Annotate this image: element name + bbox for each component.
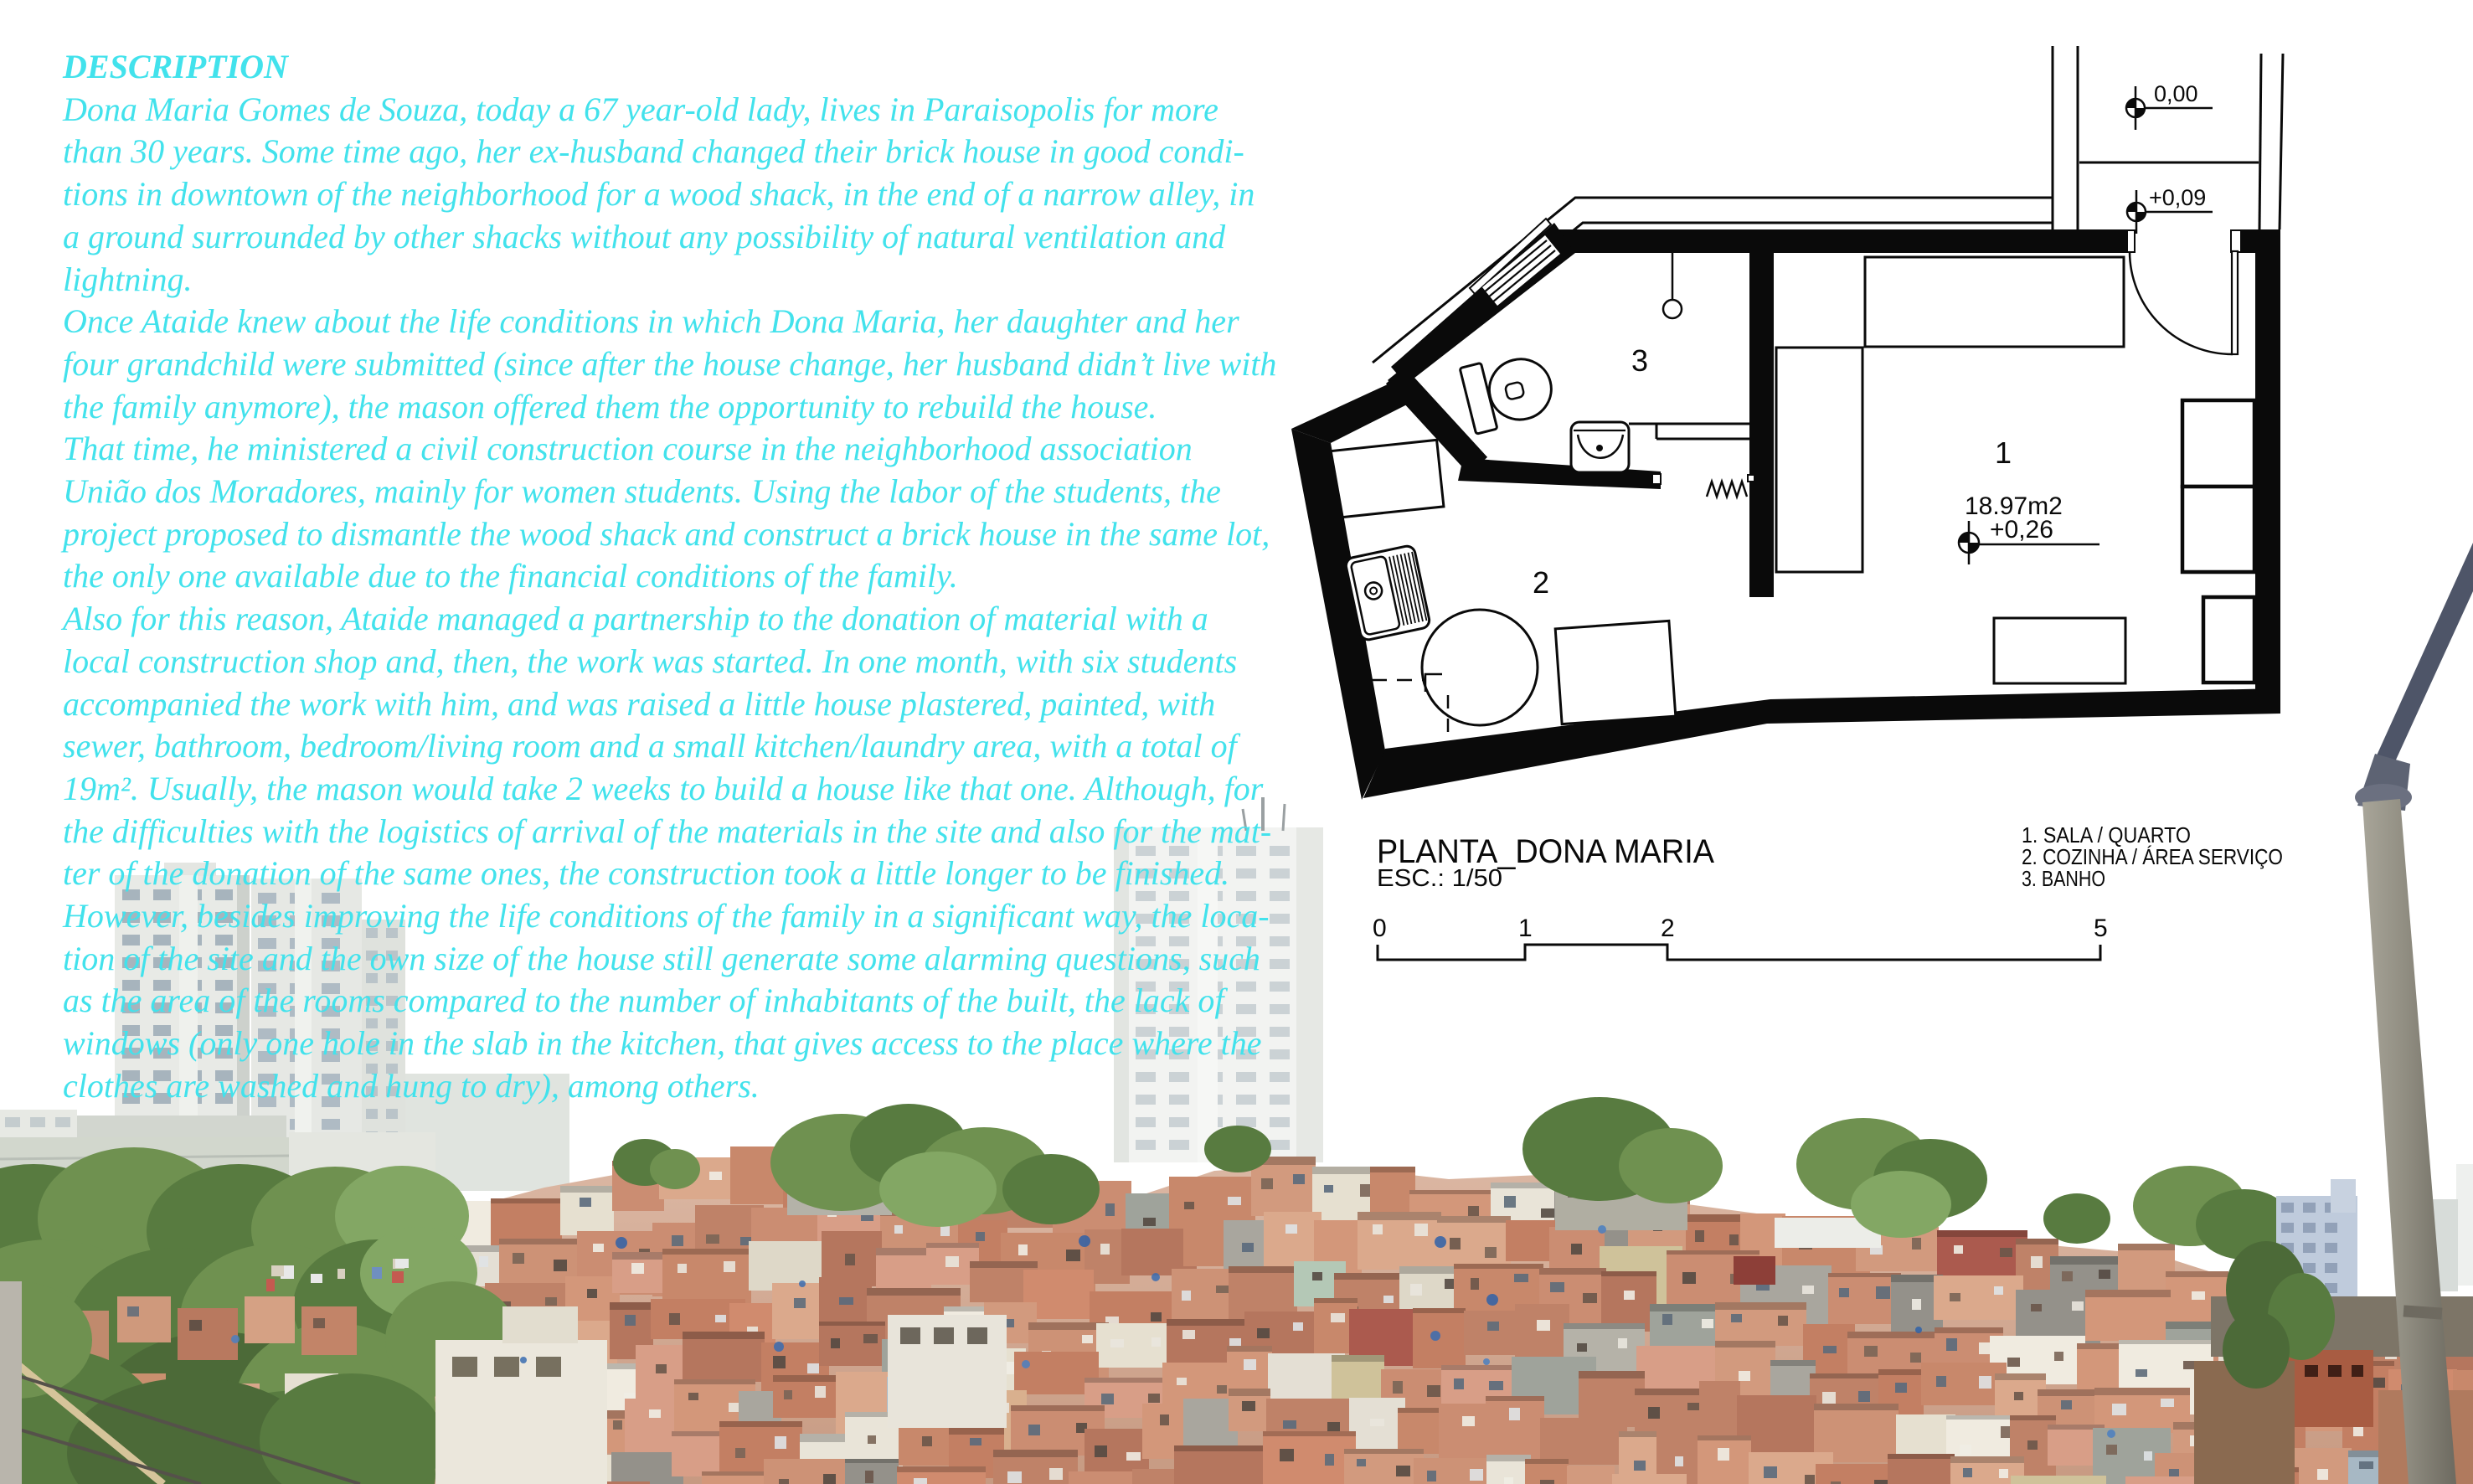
svg-text:0: 0 xyxy=(1373,915,1387,942)
svg-text:2: 2 xyxy=(1661,915,1675,942)
svg-text:3. BANHO: 3. BANHO xyxy=(2022,866,2105,891)
svg-text:5: 5 xyxy=(2094,915,2108,942)
svg-text:+0,26: +0,26 xyxy=(1990,516,2053,544)
svg-text:2: 2 xyxy=(1533,565,1549,600)
svg-text:+0,09: +0,09 xyxy=(2149,185,2206,210)
svg-text:0,00: 0,00 xyxy=(2154,81,2198,106)
svg-text:ESC.: 1/50: ESC.: 1/50 xyxy=(1377,865,1502,892)
svg-text:1: 1 xyxy=(1518,915,1533,942)
svg-text:1: 1 xyxy=(1995,435,2012,470)
svg-text:3: 3 xyxy=(1631,343,1648,378)
